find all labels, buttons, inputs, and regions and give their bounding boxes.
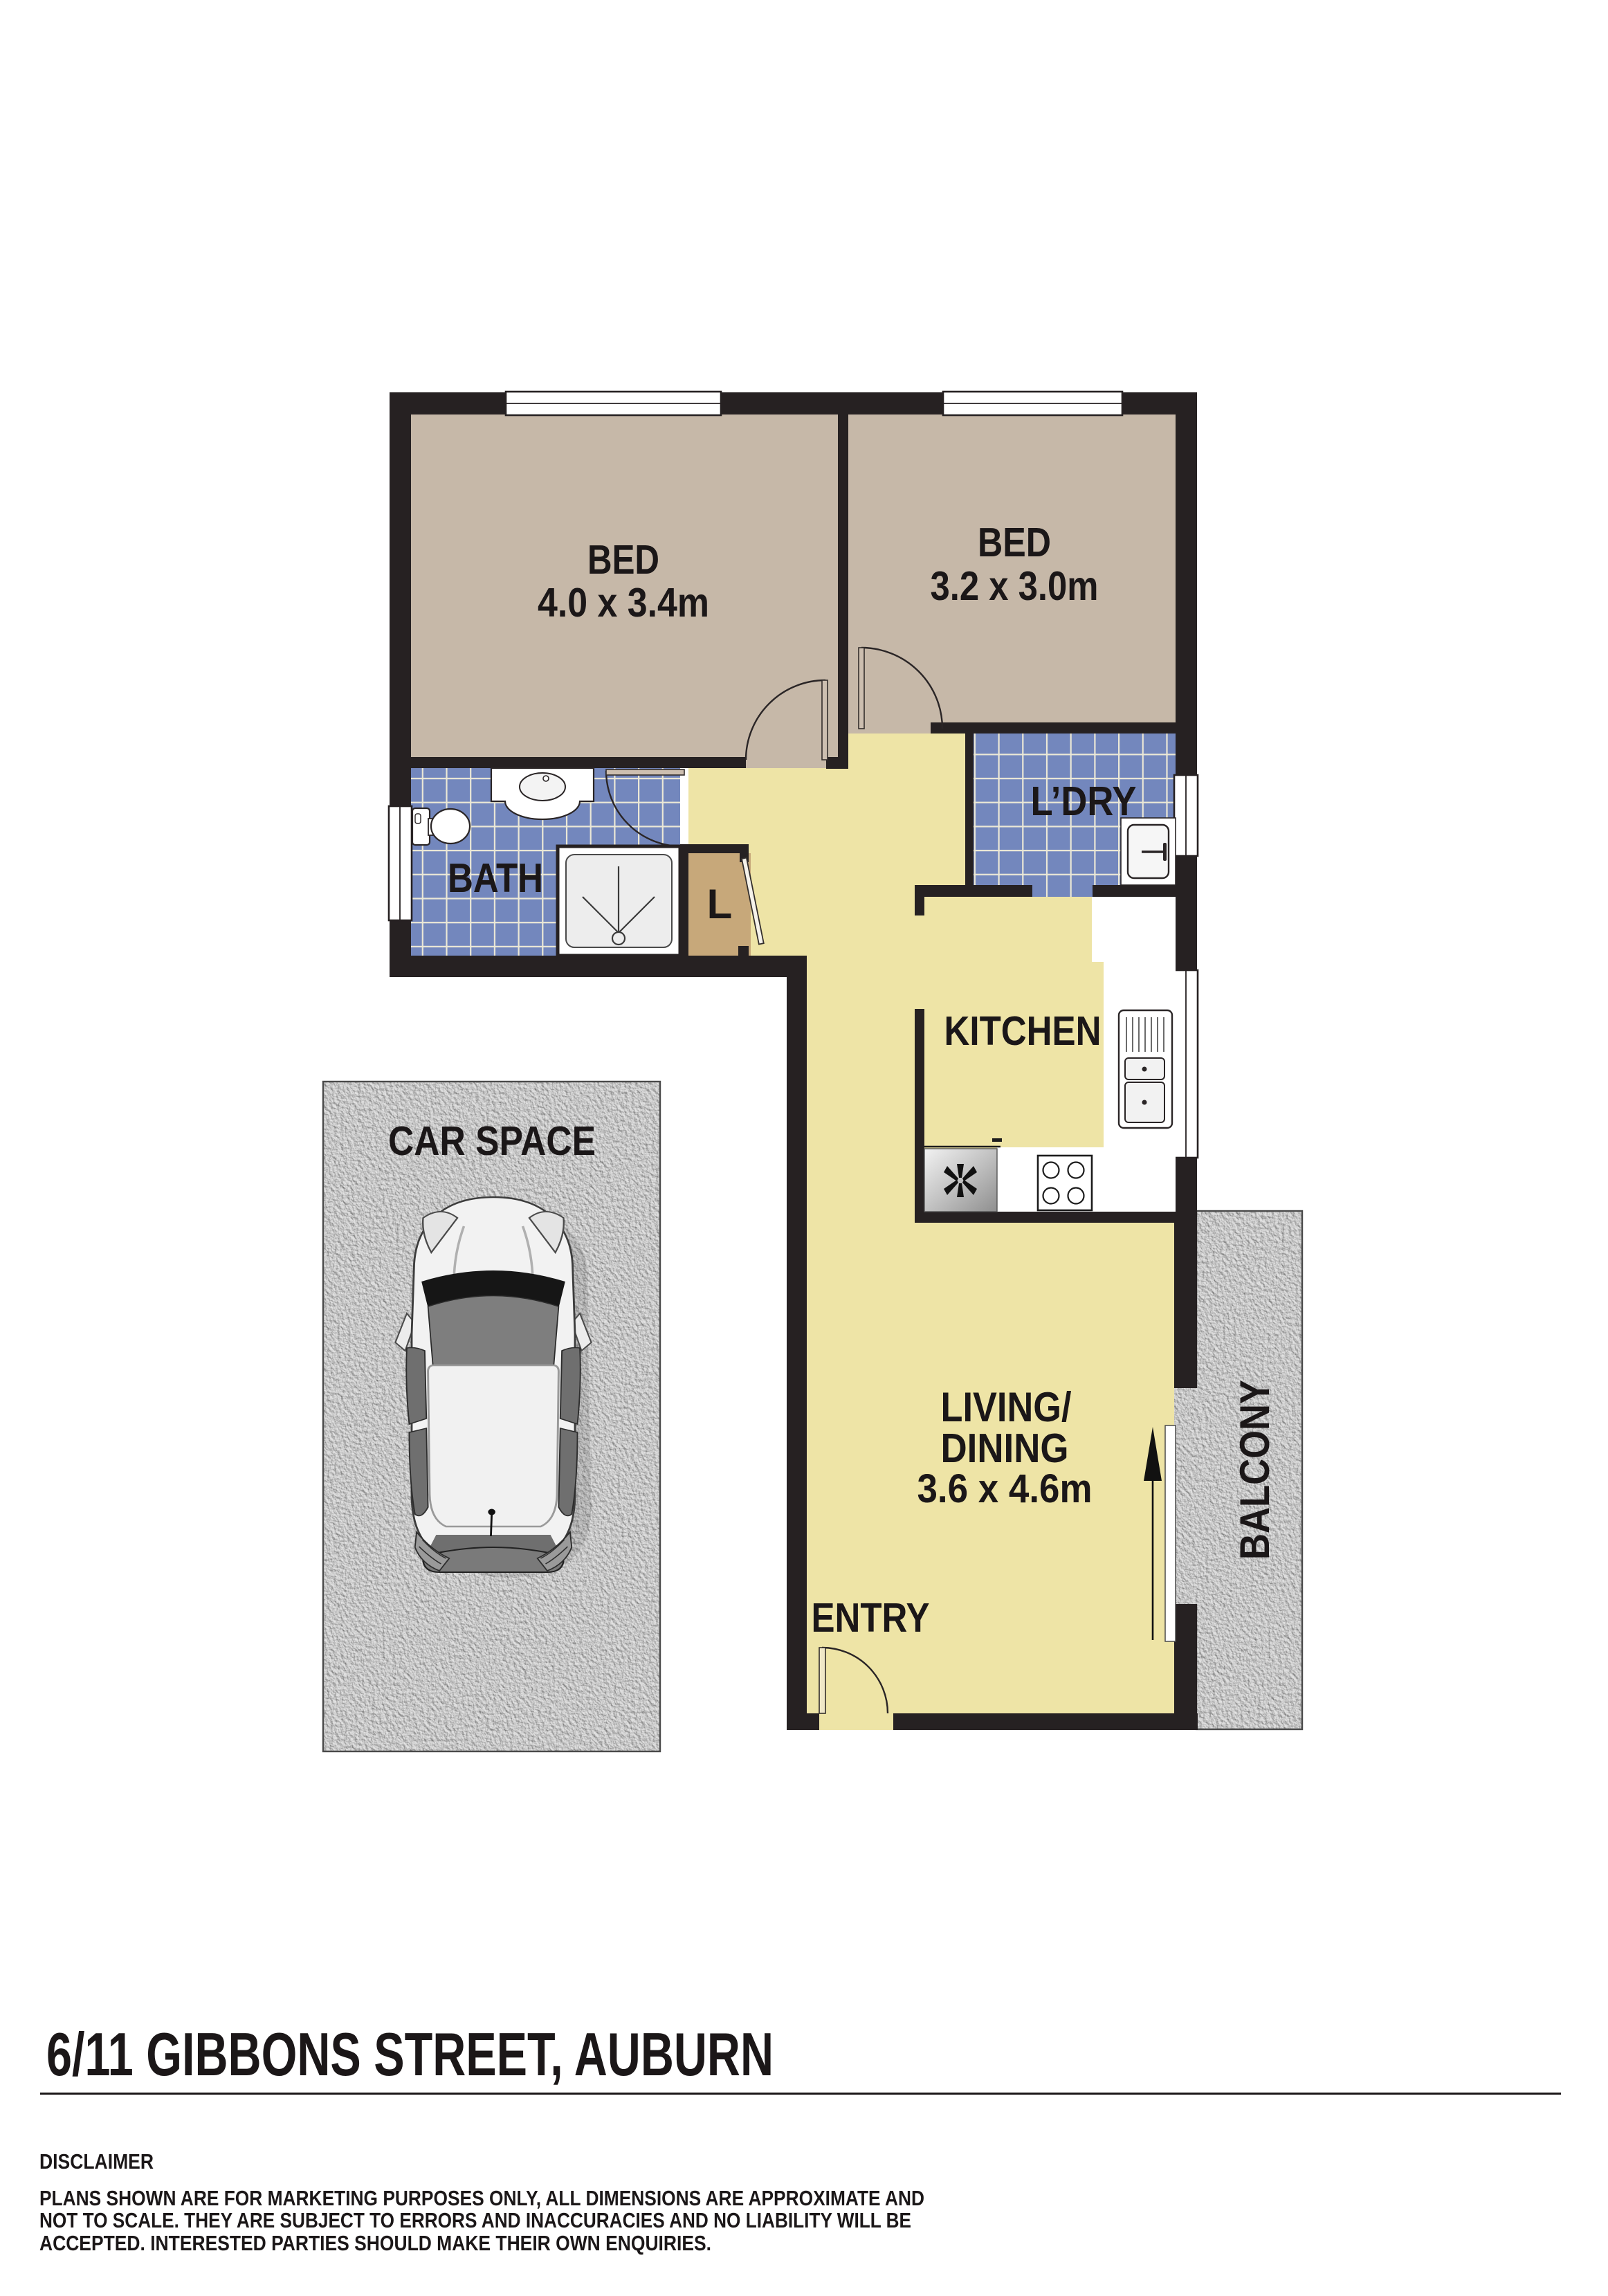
svg-text:ACCEPTED. INTERESTED PARTIES S: ACCEPTED. INTERESTED PARTIES SHOULD MAKE…	[39, 2231, 711, 2255]
svg-text:CAR SPACE: CAR SPACE	[388, 1118, 596, 1164]
svg-text:6/11 GIBBONS STREET, AUBURN: 6/11 GIBBONS STREET, AUBURN	[46, 2020, 774, 2088]
svg-text:BALCONY: BALCONY	[1232, 1380, 1278, 1560]
svg-text:L: L	[707, 881, 733, 927]
svg-text:ENTRY: ENTRY	[812, 1595, 930, 1641]
svg-text:DINING: DINING	[941, 1425, 1069, 1471]
svg-text:NOT TO SCALE. THEY ARE SUBJECT: NOT TO SCALE. THEY ARE SUBJECT TO ERRORS…	[39, 2208, 911, 2232]
svg-text:BED: BED	[587, 537, 659, 583]
svg-text:PLANS SHOWN ARE FOR MARKETING: PLANS SHOWN ARE FOR MARKETING PURPOSES O…	[39, 2186, 924, 2210]
svg-text:L’DRY: L’DRY	[1031, 778, 1137, 824]
svg-text:LIVING/: LIVING/	[941, 1384, 1072, 1430]
svg-text:BATH: BATH	[448, 855, 543, 901]
svg-text:DISCLAIMER: DISCLAIMER	[39, 2149, 154, 2174]
svg-text:KITCHEN: KITCHEN	[944, 1008, 1102, 1054]
svg-text:4.0 x 3.4m: 4.0 x 3.4m	[538, 580, 709, 626]
svg-text:3.2 x 3.0m: 3.2 x 3.0m	[931, 563, 1099, 609]
svg-text:BED: BED	[978, 520, 1051, 565]
svg-text:3.6 x 4.6m: 3.6 x 4.6m	[917, 1466, 1093, 1511]
